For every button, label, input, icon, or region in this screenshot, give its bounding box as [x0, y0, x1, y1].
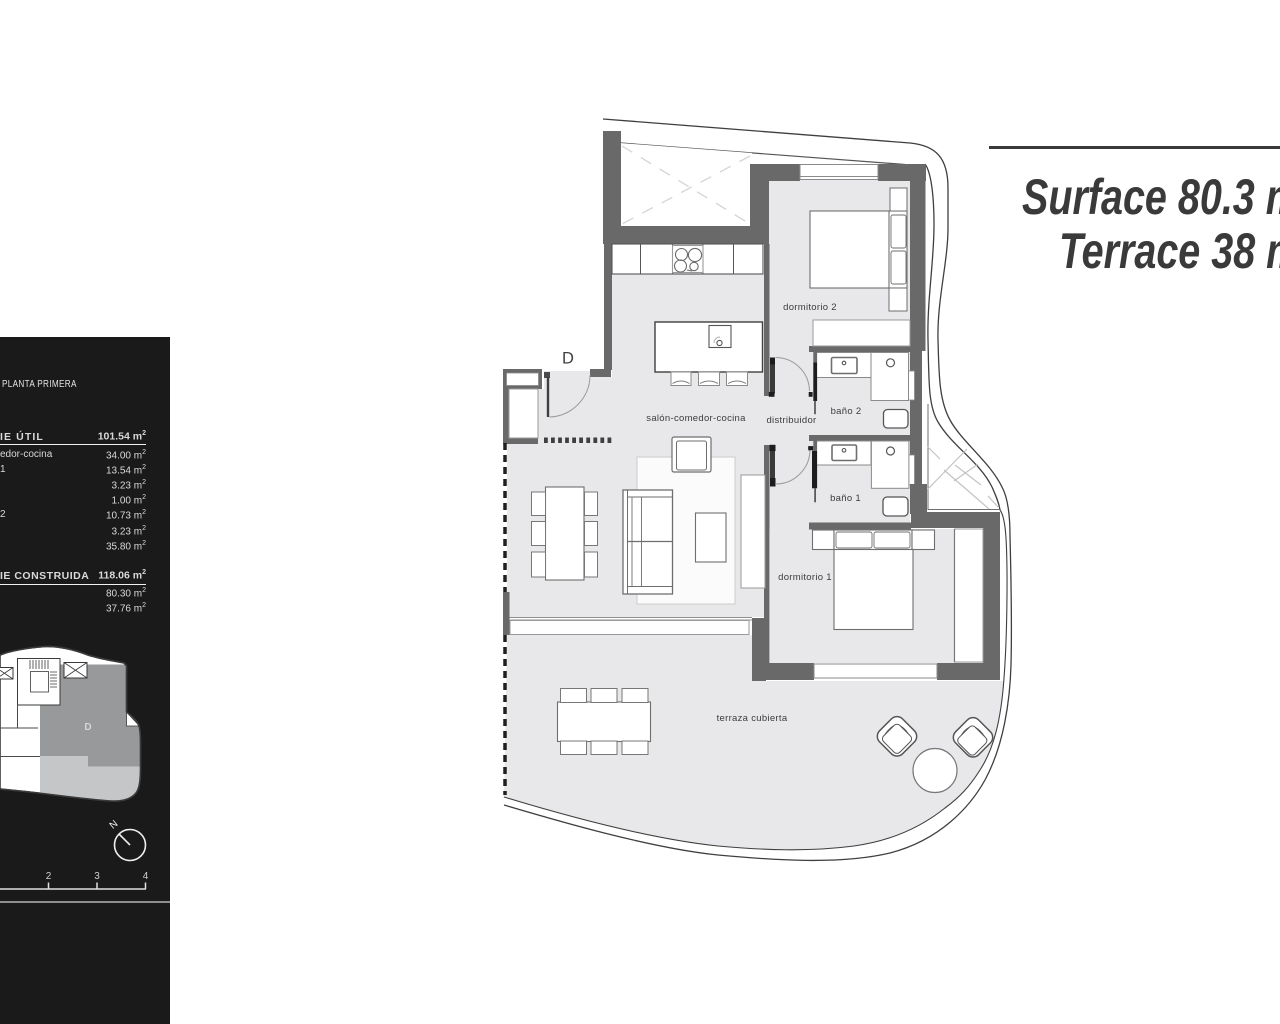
svg-text:baño 1: baño 1 — [830, 493, 861, 504]
svg-text:distribuidor: distribuidor — [766, 415, 816, 426]
svg-text:D: D — [562, 350, 574, 368]
svg-text:dormitorio 2: dormitorio 2 — [783, 302, 837, 313]
svg-text:3: 3 — [94, 871, 100, 882]
svg-text:4: 4 — [143, 871, 149, 882]
svg-text:D: D — [84, 722, 91, 733]
svg-text:1: 1 — [0, 871, 1, 882]
svg-text:terraza cubierta: terraza cubierta — [717, 713, 788, 724]
svg-text:dormitorio 1: dormitorio 1 — [778, 572, 832, 583]
svg-text:baño 2: baño 2 — [831, 406, 862, 417]
svg-text:N: N — [108, 819, 121, 832]
svg-text:salón-comedor-cocina: salón-comedor-cocina — [646, 413, 746, 424]
svg-text:2: 2 — [46, 871, 52, 882]
